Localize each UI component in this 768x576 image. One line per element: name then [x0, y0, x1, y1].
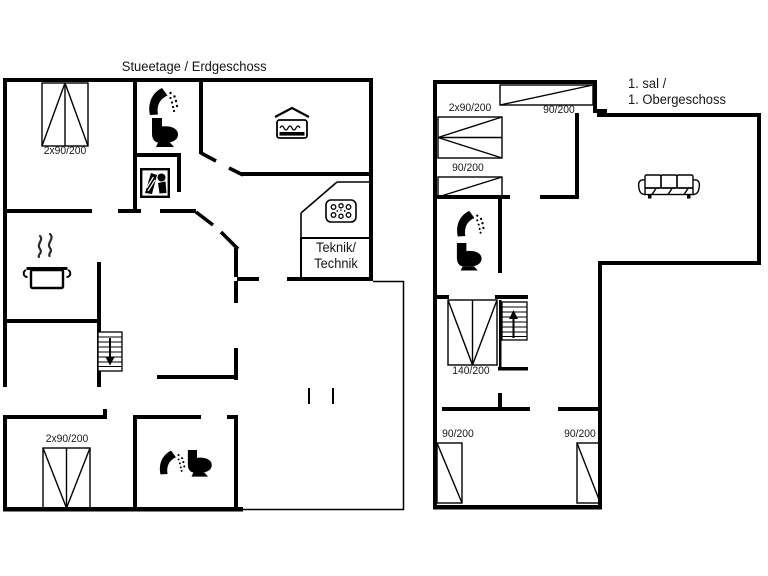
- bed-90-single: [438, 177, 502, 197]
- cooking-pot-icon: [24, 234, 71, 288]
- bed-2x90-top-left: [42, 83, 88, 146]
- double-bed-icon: [275, 108, 309, 138]
- ground-floor-walls: [3, 78, 373, 512]
- toilet-icon: [152, 118, 178, 147]
- ground-floor-plan: [3, 78, 404, 512]
- first-floor-walls: [433, 80, 761, 510]
- terrace-outline: [243, 281, 404, 510]
- sofa-icon: [639, 175, 700, 199]
- shower-icon: [457, 211, 484, 237]
- toilet-icon: [457, 243, 482, 271]
- bed-label: 90/200: [529, 105, 589, 117]
- first-floor-plan: [433, 80, 761, 510]
- stairs-down-icon: [98, 332, 122, 371]
- washing-machine-icon: [141, 169, 169, 197]
- shower-icon: [149, 88, 178, 115]
- ground-floor-diagonal-walls: [196, 153, 243, 249]
- ground-floor-title: Stueetage / Erdgeschoss: [122, 59, 256, 74]
- bed-label: 90/200: [550, 429, 610, 441]
- stairs-up-icon: [502, 302, 527, 340]
- bed-label: 2x90/200: [440, 103, 500, 115]
- bed-90-bottom-left: [437, 443, 462, 503]
- stove-hob-icon: [326, 200, 356, 222]
- first-floor-title-line2: 1. Obergeschoss: [628, 92, 726, 107]
- bed-label: 90/200: [428, 429, 488, 441]
- toilet-icon: [188, 450, 212, 477]
- floor-plan-page: Stueetage / Erdgeschoss 1. sal / 1. Ober…: [0, 0, 768, 576]
- first-floor-title-line1: 1. sal /: [628, 76, 666, 91]
- bed-2x90-bunk: [438, 117, 502, 158]
- bed-90-bottom-right: [577, 443, 600, 503]
- shower-icon: [160, 451, 185, 475]
- bed-label: 2x90/200: [37, 434, 97, 446]
- bed-label: 140/200: [441, 366, 501, 378]
- bed-label: 90/200: [438, 163, 498, 175]
- bed-140-double: [448, 300, 497, 365]
- utility-room-label-line2: Technik: [303, 256, 370, 272]
- bed-label: 2x90/200: [35, 146, 95, 158]
- utility-room-label-line1: Teknik/: [303, 240, 370, 256]
- bed-90-top: [500, 85, 593, 105]
- utility-room-label: Teknik/ Technik: [303, 240, 370, 271]
- bed-2x90-annex: [43, 448, 90, 508]
